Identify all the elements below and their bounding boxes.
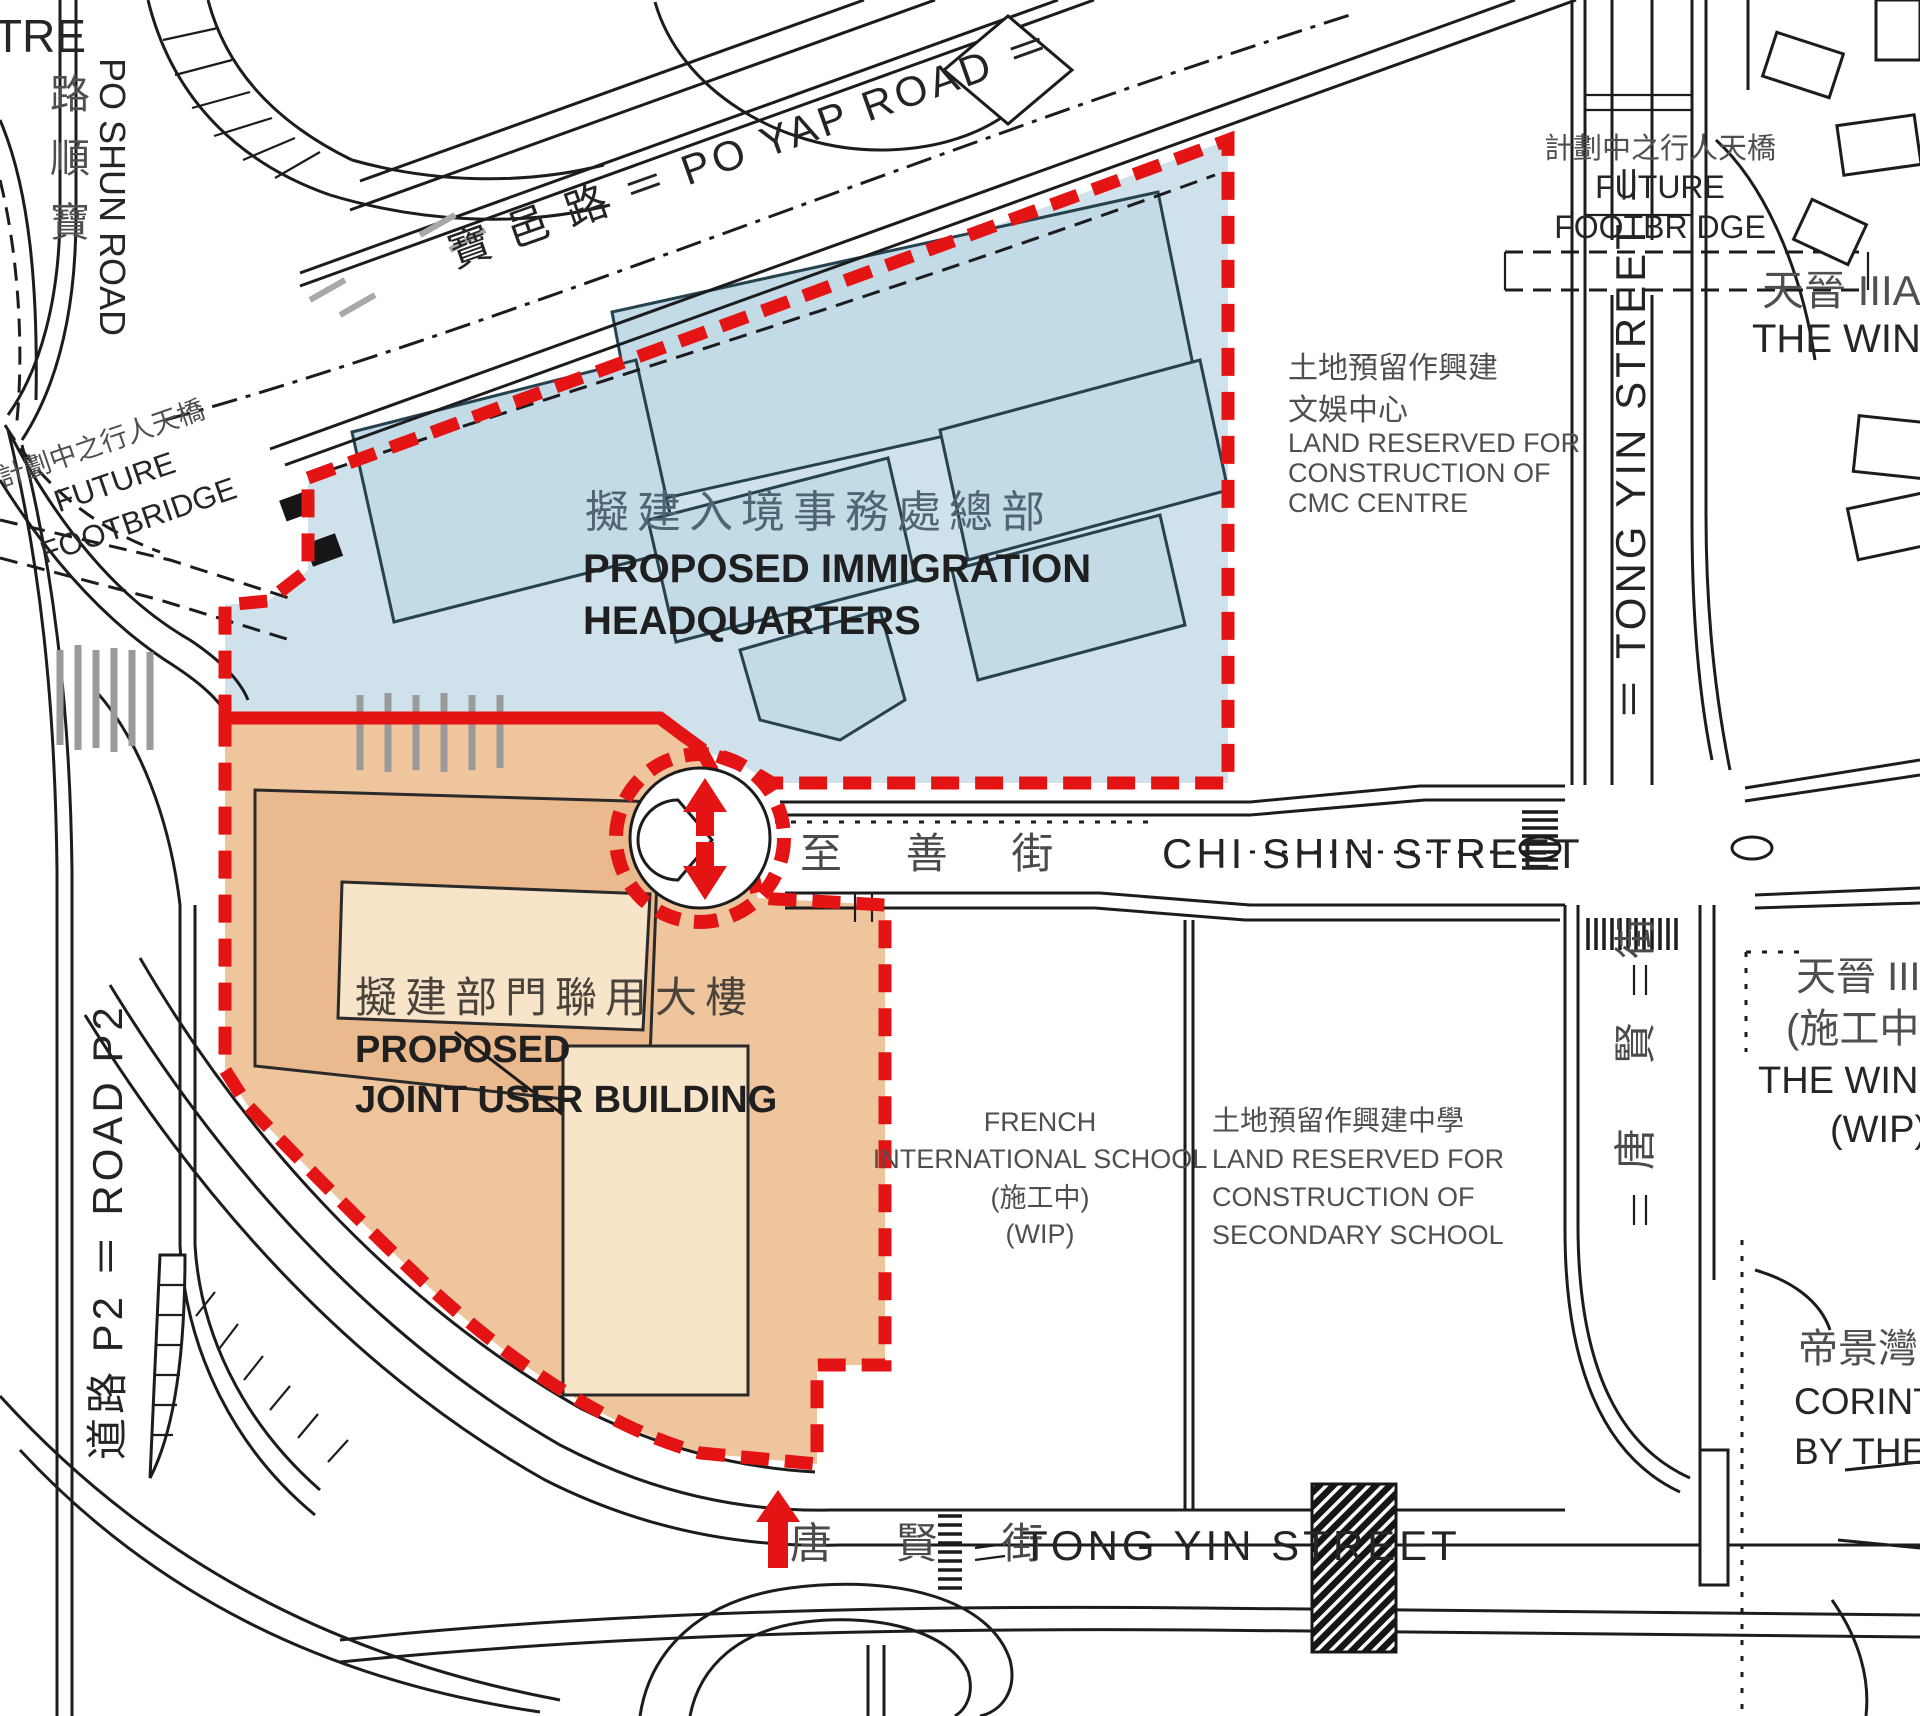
svg-text:擬建部門聯用大樓: 擬建部門聯用大樓 [355, 974, 755, 1021]
french-school-label: FRENCH INTERNATIONAL SCHOOL (施工中) (WIP) [873, 1107, 1208, 1249]
centre-partial-label: TRE [0, 10, 86, 62]
po-shun-cn-char: 路 [50, 73, 90, 117]
road-p2-label: 道路 P2 ＝ ROAD P2 [84, 1003, 131, 1460]
svg-text:(WIP): (WIP) [1830, 1109, 1920, 1151]
po-shun-cn-char: 順 [50, 137, 90, 181]
chi-shin-street-en-label: CHI SHIN STREET [1162, 830, 1584, 877]
map-canvas: TRE 路 順 寶 PO SHUN ROAD 寶 邑 路 ＝ PO YAP RO… [0, 0, 1920, 1716]
site-plan-map: TRE 路 順 寶 PO SHUN ROAD 寶 邑 路 ＝ PO YAP RO… [0, 0, 1920, 1716]
svg-text:PROPOSED IMMIGRATION: PROPOSED IMMIGRATION [583, 547, 1091, 591]
svg-text:擬建入境事務處總部: 擬建入境事務處總部 [585, 488, 1053, 537]
po-shun-cn-char: 寶 [50, 201, 90, 245]
svg-text:(WIP): (WIP) [1006, 1219, 1075, 1249]
wings-iiia-cn-label: 天晉 IIIA [1762, 267, 1920, 314]
svg-text:天晉 III: 天晉 III [1796, 955, 1920, 999]
svg-text:THE WINGS: THE WINGS [1758, 1060, 1920, 1102]
svg-text:LAND RESERVED FOR: LAND RESERVED FOR [1212, 1144, 1504, 1174]
svg-text:土地預留作興建: 土地預留作興建 [1288, 352, 1498, 385]
svg-text:土地預留作興建中學: 土地預留作興建中學 [1212, 1105, 1464, 1136]
cmc-centre-label: 土地預留作興建 文娛中心 LAND RESERVED FOR CONSTRUCT… [1288, 352, 1580, 518]
svg-text:BY THE: BY THE [1794, 1431, 1920, 1472]
svg-text:HEADQUARTERS: HEADQUARTERS [583, 599, 921, 643]
svg-text:FOOTBRIDGE: FOOTBRIDGE [1554, 209, 1766, 245]
svg-text:文娛中心: 文娛中心 [1288, 394, 1408, 427]
svg-text:FRENCH: FRENCH [984, 1107, 1097, 1137]
svg-text:CONSTRUCTION OF: CONSTRUCTION OF [1288, 458, 1551, 488]
svg-text:JOINT USER BUILDING: JOINT USER BUILDING [355, 1079, 777, 1121]
svg-text:INTERNATIONAL SCHOOL: INTERNATIONAL SCHOOL [873, 1144, 1208, 1174]
svg-text:計劃中之行人天橋: 計劃中之行人天橋 [1544, 132, 1776, 165]
corinthia-label: 帝景灣 CORINTH BY THE [1794, 1327, 1920, 1472]
svg-text:CORINTH: CORINTH [1794, 1381, 1920, 1422]
secondary-school-label: 土地預留作興建中學 LAND RESERVED FOR CONSTRUCTION… [1212, 1105, 1504, 1250]
svg-text:CMC CENTRE: CMC CENTRE [1288, 488, 1468, 518]
svg-text:PROPOSED: PROPOSED [355, 1029, 570, 1071]
svg-text:(施工中: (施工中 [1786, 1007, 1919, 1051]
svg-text:(施工中): (施工中) [991, 1183, 1090, 1213]
wings-iiia-en-label: THE WINGS [1752, 317, 1920, 361]
svg-text:SECONDARY SCHOOL: SECONDARY SCHOOL [1212, 1220, 1504, 1250]
tong-yin-lower-cn-label: 唐 賢 街 [1612, 891, 1659, 1170]
chi-shin-street-cn-label: 至 善 街 [800, 830, 1079, 877]
po-shun-road-label: PO SHUN ROAD [92, 58, 133, 336]
svg-text:帝景灣: 帝景灣 [1798, 1327, 1918, 1371]
tong-yin-street-upper-label: ＝ TONG YIN STREET ＝ [1607, 159, 1654, 720]
tong-yin-bottom-en-label: TONG YIN STREET [1022, 1522, 1461, 1569]
svg-text:LAND RESERVED FOR: LAND RESERVED FOR [1288, 428, 1580, 458]
future-footbridge-right-label: 計劃中之行人天橋 FUTURE FOOTBRIDGE [1544, 132, 1776, 245]
svg-text:CONSTRUCTION OF: CONSTRUCTION OF [1212, 1182, 1475, 1212]
wings-iii-wip-label: 天晉 III (施工中 THE WINGS (WIP) [1758, 955, 1920, 1151]
